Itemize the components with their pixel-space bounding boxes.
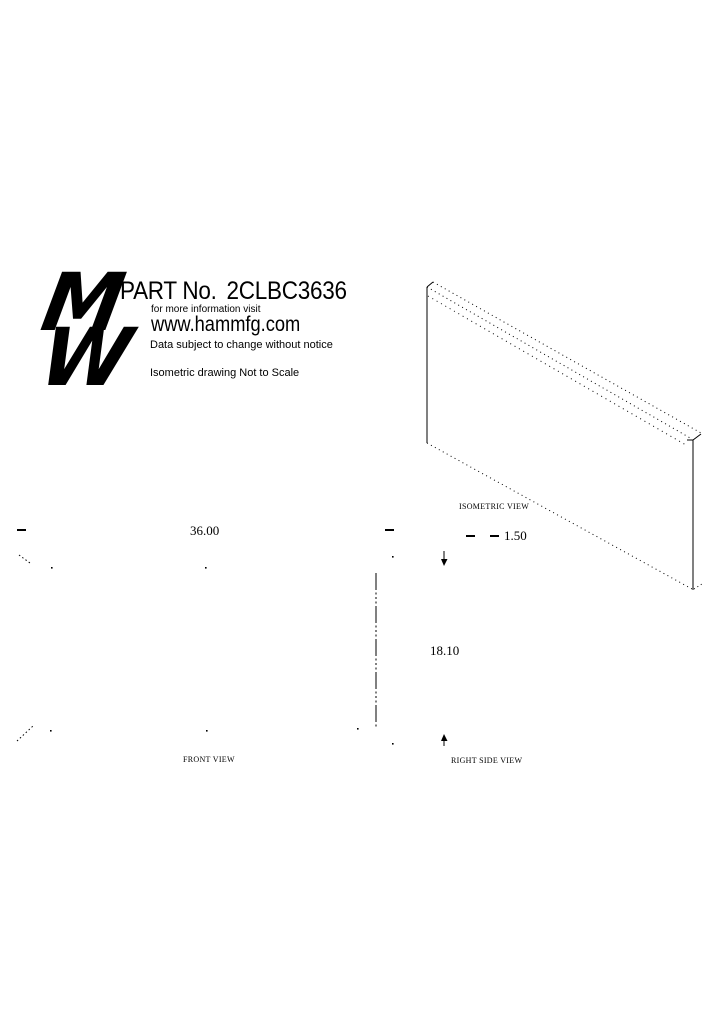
- iso-top-back-edge: [433, 282, 701, 433]
- part-number-title: PART No.2CLBC3636: [120, 279, 347, 304]
- side-height-dimension: 18.10: [430, 644, 459, 657]
- scale-note: Isometric drawing Not to Scale: [150, 367, 299, 379]
- logo-letter-w: W: [34, 312, 143, 400]
- part-label: PART No.: [120, 277, 217, 305]
- front-view-geometry: [17, 530, 394, 745]
- front-corner-mark-bottom-left: [17, 726, 33, 741]
- drawing-sheet: M W PART No.2CLBC3636 for more informati…: [0, 0, 720, 1012]
- right-side-view-caption: RIGHT SIDE VIEW: [451, 757, 522, 765]
- iso-top-front-edge: [427, 287, 692, 439]
- iso-bottom-front-edge: [427, 443, 692, 589]
- height-dim-arrow-up: [441, 734, 448, 741]
- iso-thickness-dimension: 1.50: [504, 529, 527, 542]
- height-dim-arrow-down: [441, 559, 448, 566]
- front-view-caption: FRONT VIEW: [183, 756, 235, 764]
- iso-top-lip-edge: [428, 296, 686, 445]
- iso-top-left-thickness-edge: [427, 282, 433, 287]
- front-corner-mark-top-left: [19, 555, 30, 563]
- isometric-view-geometry: [427, 282, 702, 590]
- isometric-view-caption: ISOMETRIC VIEW: [459, 503, 529, 511]
- part-number: 2CLBC3636: [227, 277, 347, 305]
- iso-bottom-right-tail: [694, 584, 702, 589]
- website-url: www.hammfg.com: [151, 314, 300, 335]
- front-width-dimension: 36.00: [190, 524, 219, 537]
- disclaimer-note: Data subject to change without notice: [150, 339, 333, 351]
- front-outline-dots: [50, 556, 394, 745]
- drawing-linework: [0, 0, 720, 1012]
